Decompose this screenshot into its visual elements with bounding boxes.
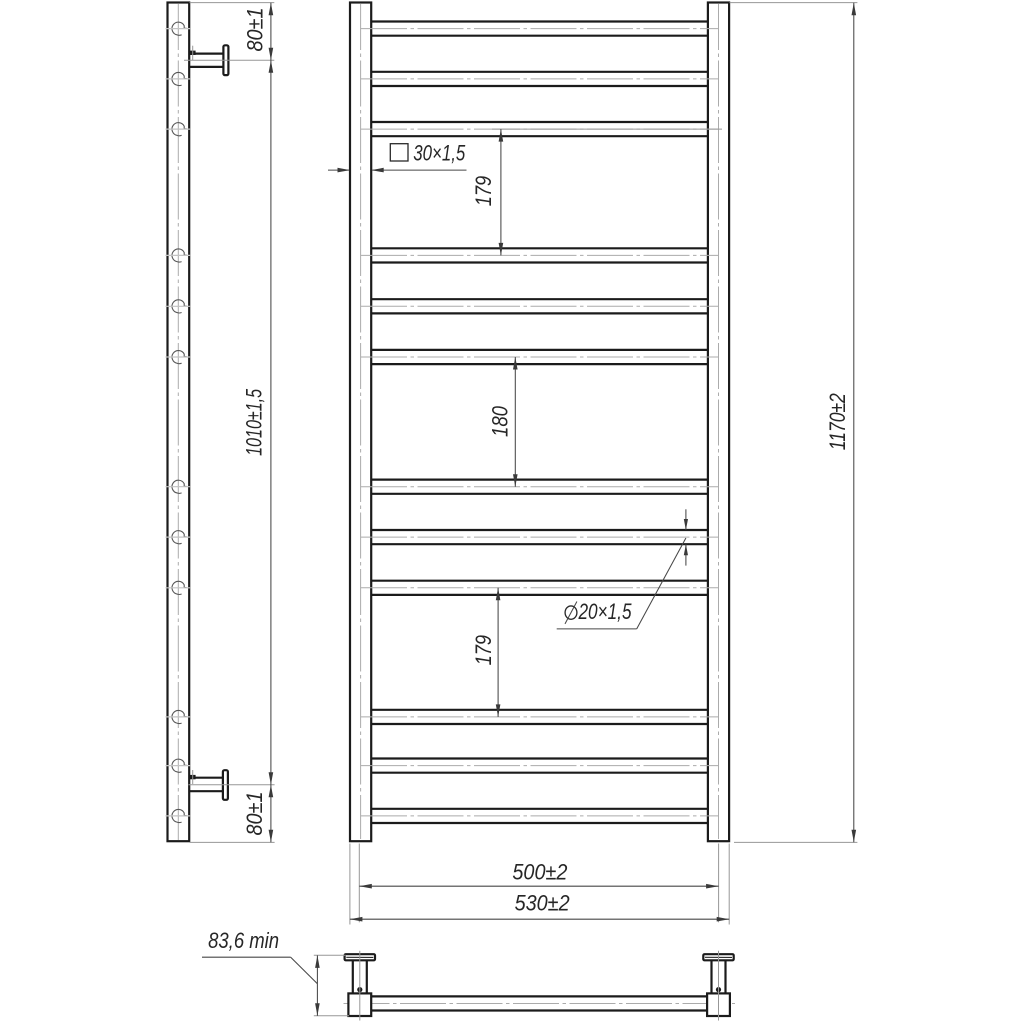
svg-text:80±1: 80±1 xyxy=(243,8,268,52)
svg-text:1170±2: 1170±2 xyxy=(825,393,850,450)
svg-text:179: 179 xyxy=(471,176,496,207)
svg-text:530±2: 530±2 xyxy=(515,891,570,916)
svg-text:80±1: 80±1 xyxy=(242,792,267,836)
svg-text:20×1,5: 20×1,5 xyxy=(578,599,632,624)
svg-text:180: 180 xyxy=(488,405,513,437)
svg-text:500±2: 500±2 xyxy=(512,860,567,885)
svg-text:83,6 min: 83,6 min xyxy=(208,928,279,953)
svg-text:30×1,5: 30×1,5 xyxy=(413,141,466,166)
svg-text:1010±1,5: 1010±1,5 xyxy=(241,388,266,456)
svg-text:179: 179 xyxy=(471,635,496,666)
